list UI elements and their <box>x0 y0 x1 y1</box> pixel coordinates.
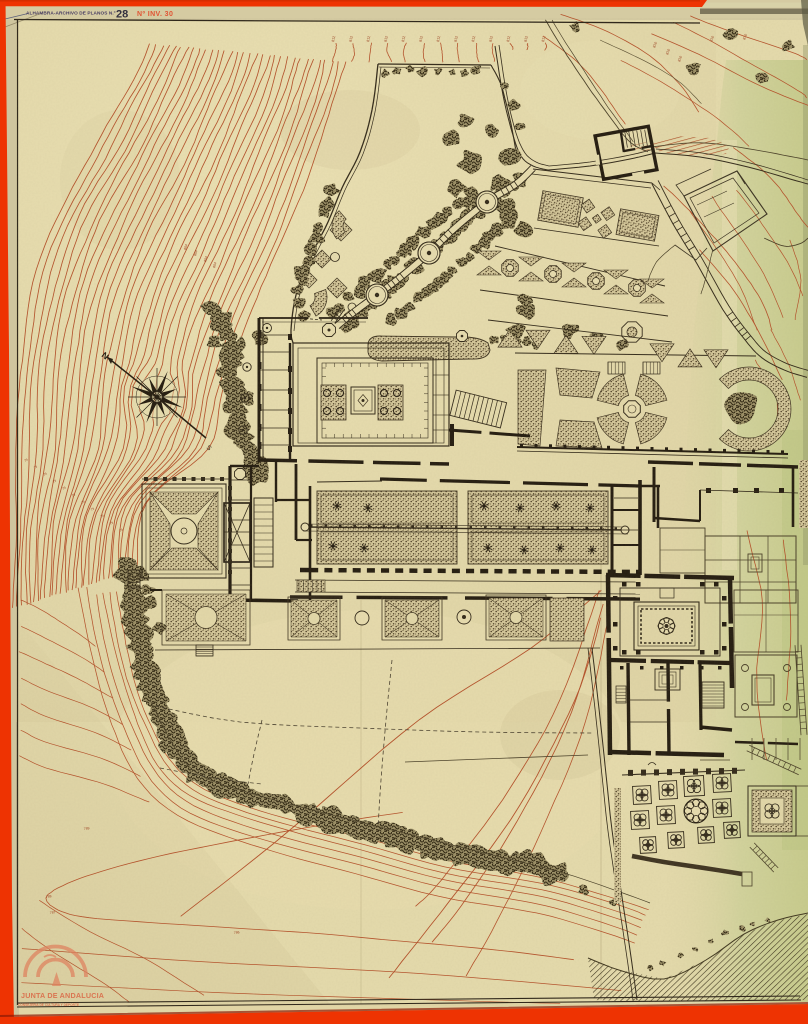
svg-text:ALHAMBRA-ARCHIVO DE PLANOS N.º: ALHAMBRA-ARCHIVO DE PLANOS N.º <box>26 11 116 16</box>
svg-text:Nº INV. 30: Nº INV. 30 <box>137 11 173 18</box>
